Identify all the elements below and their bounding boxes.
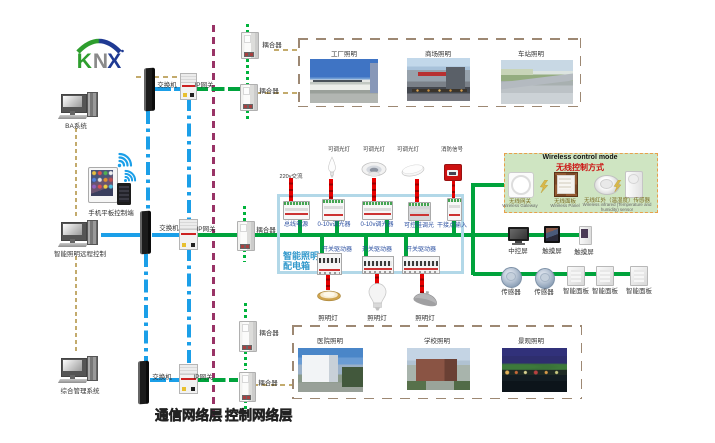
svg-text:X: X bbox=[107, 50, 121, 70]
svg-text:K: K bbox=[77, 50, 92, 70]
svg-text:N: N bbox=[93, 50, 108, 70]
